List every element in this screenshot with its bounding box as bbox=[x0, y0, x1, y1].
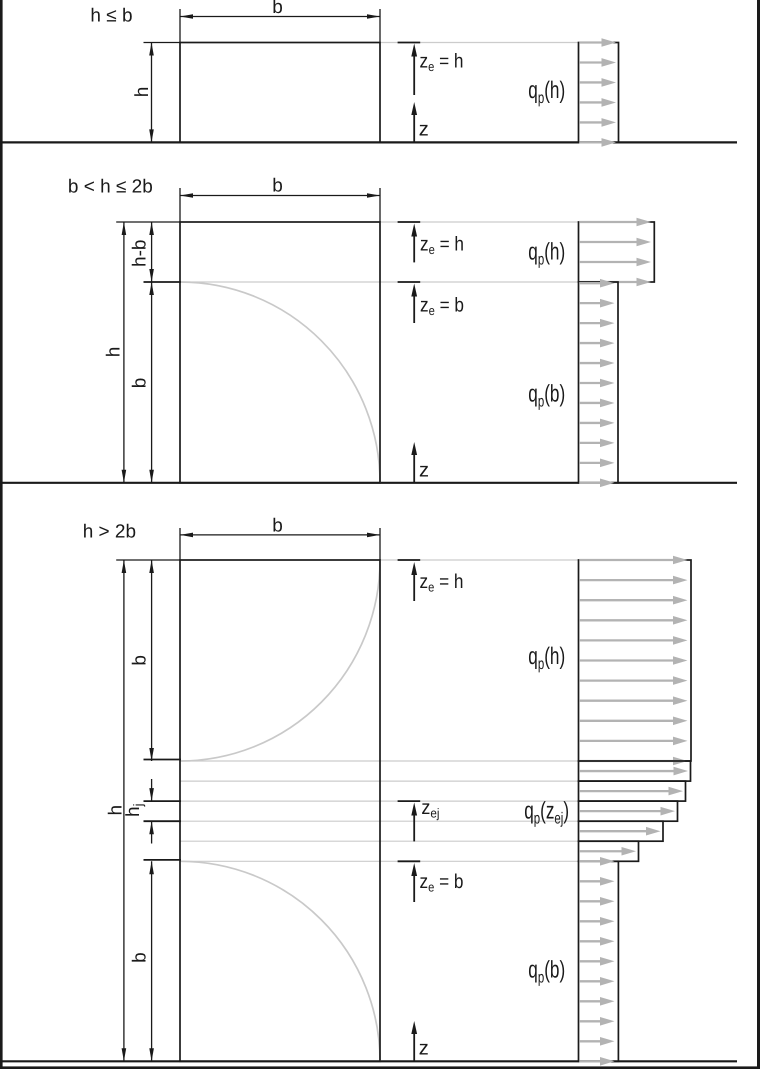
svg-text:h: h bbox=[132, 87, 153, 98]
svg-text:qp(b): qp(b) bbox=[528, 381, 565, 411]
svg-text:qp(h): qp(h) bbox=[528, 643, 565, 673]
svg-text:ze = b: ze = b bbox=[420, 295, 464, 319]
svg-text:b: b bbox=[272, 176, 283, 197]
svg-text:ze = b: ze = b bbox=[420, 871, 464, 895]
svg-text:b: b bbox=[130, 655, 151, 666]
svg-text:ze = h: ze = h bbox=[420, 571, 464, 595]
svg-text:qp(b): qp(b) bbox=[528, 957, 565, 987]
svg-text:h ≤ b: h ≤ b bbox=[90, 6, 132, 27]
svg-text:z: z bbox=[419, 119, 429, 141]
svg-text:z: z bbox=[419, 1038, 429, 1060]
svg-text:b: b bbox=[130, 952, 151, 963]
svg-text:qp(h): qp(h) bbox=[528, 239, 565, 269]
svg-text:h-b: h-b bbox=[130, 240, 151, 267]
svg-text:b: b bbox=[130, 378, 151, 389]
svg-text:ze = h: ze = h bbox=[420, 233, 464, 257]
svg-text:h: h bbox=[104, 347, 125, 358]
svg-text:b: b bbox=[272, 0, 283, 18]
svg-text:h > 2b: h > 2b bbox=[83, 521, 136, 542]
svg-text:b: b bbox=[272, 516, 283, 537]
svg-text:z: z bbox=[419, 459, 429, 481]
svg-text:b < h ≤ 2b: b < h ≤ 2b bbox=[68, 176, 153, 197]
svg-text:qp(h): qp(h) bbox=[528, 77, 565, 107]
svg-text:ze = h: ze = h bbox=[420, 51, 464, 75]
